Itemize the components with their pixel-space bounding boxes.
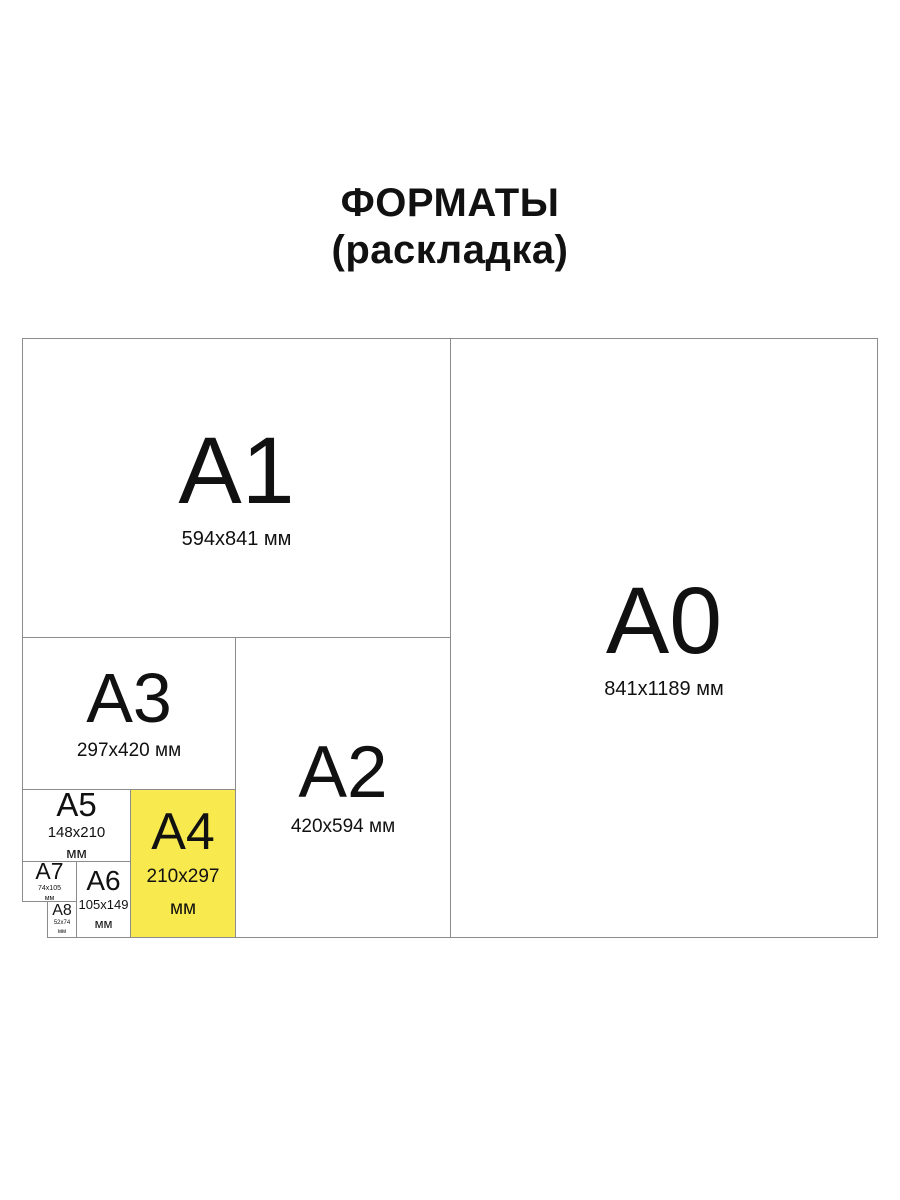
page-title-line2: (раскладка) xyxy=(0,227,900,274)
format-box-a8: A8 52x74 мм xyxy=(47,901,77,938)
format-name-a6: A6 xyxy=(86,867,120,895)
format-box-a1: A1 594x841 мм xyxy=(22,338,451,638)
format-box-a6: A6 105x149 мм xyxy=(76,861,131,938)
format-box-a0: A0 841x1189 мм xyxy=(450,338,878,938)
format-name-a0: A0 xyxy=(606,574,722,669)
format-dims-a1: 594x841 мм xyxy=(182,526,292,552)
format-dims-unit-a4: мм xyxy=(170,897,196,922)
format-box-a3: A3 297x420 мм xyxy=(22,637,236,790)
paper-formats-diagram: A1 594x841 мм A0 841x1189 мм A3 297x420 … xyxy=(22,338,878,938)
format-box-a5: A5 148x210 мм xyxy=(22,789,131,862)
format-name-a1: A1 xyxy=(178,424,294,519)
format-name-a5: A5 xyxy=(56,788,96,821)
format-name-a7: A7 xyxy=(35,860,63,883)
format-dims-a0: 841x1189 мм xyxy=(604,676,723,702)
format-dims-a2: 420x594 мм xyxy=(291,815,395,840)
page-title-line1: ФОРМАТЫ xyxy=(0,180,900,227)
format-box-a7: A7 74x105 мм xyxy=(22,861,77,902)
format-name-a4: A4 xyxy=(151,806,215,858)
format-dims-a5: 148x210 xyxy=(48,823,106,843)
format-name-a8: A8 xyxy=(52,903,72,919)
format-dims-a4: 210x297 xyxy=(147,865,220,890)
format-dims-unit-a8: мм xyxy=(58,929,66,937)
format-dims-a7: 74x105 xyxy=(38,884,61,893)
format-name-a2: A2 xyxy=(298,736,387,809)
format-dims-unit-a6: мм xyxy=(95,916,113,933)
page-title: ФОРМАТЫ (раскладка) xyxy=(0,180,900,274)
format-name-a3: A3 xyxy=(86,663,172,733)
format-box-a2: A2 420x594 мм xyxy=(235,637,451,938)
format-dims-a6: 105x149 xyxy=(79,897,129,914)
format-dims-a8: 52x74 xyxy=(54,920,70,928)
format-dims-a3: 297x420 мм xyxy=(77,739,181,764)
format-box-a4-highlighted: A4 210x297 мм xyxy=(130,789,236,938)
